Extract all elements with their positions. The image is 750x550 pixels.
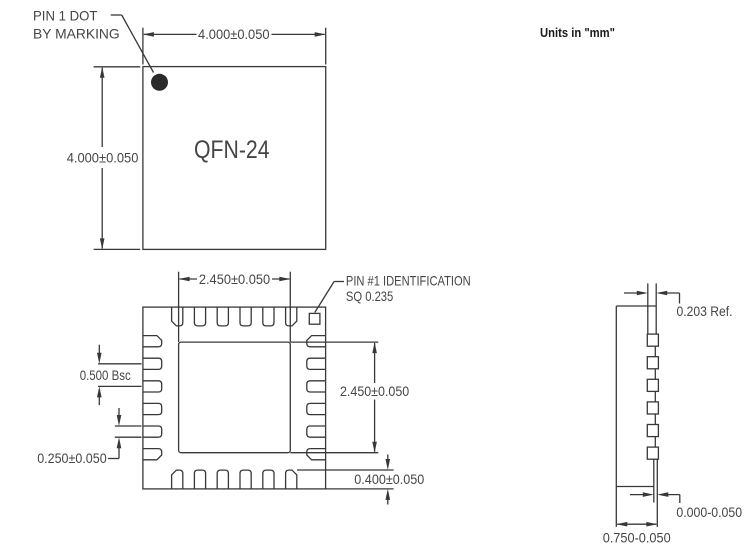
- svg-text:SQ 0.235: SQ 0.235: [346, 288, 394, 304]
- svg-text:BY MARKING: BY MARKING: [33, 26, 120, 42]
- svg-text:2.450±0.050: 2.450±0.050: [199, 271, 270, 287]
- svg-text:QFN-24: QFN-24: [194, 136, 270, 164]
- svg-text:0.750-0.050: 0.750-0.050: [603, 530, 671, 546]
- svg-text:PIN #1 IDENTIFICATION: PIN #1 IDENTIFICATION: [346, 273, 471, 289]
- svg-text:0.500 Bsc: 0.500 Bsc: [80, 367, 131, 383]
- svg-text:0.250±0.050: 0.250±0.050: [37, 450, 107, 466]
- svg-text:Units in "mm": Units in "mm": [540, 26, 615, 40]
- svg-text:PIN 1 DOT: PIN 1 DOT: [33, 8, 98, 24]
- svg-text:2.450±0.050: 2.450±0.050: [340, 383, 409, 399]
- svg-text:0.203 Ref.: 0.203 Ref.: [677, 303, 733, 319]
- svg-text:0.000-0.050: 0.000-0.050: [676, 504, 742, 520]
- svg-text:0.400±0.050: 0.400±0.050: [354, 471, 424, 487]
- svg-text:4.000±0.050: 4.000±0.050: [67, 149, 139, 165]
- svg-text:4.000±0.050: 4.000±0.050: [198, 26, 270, 42]
